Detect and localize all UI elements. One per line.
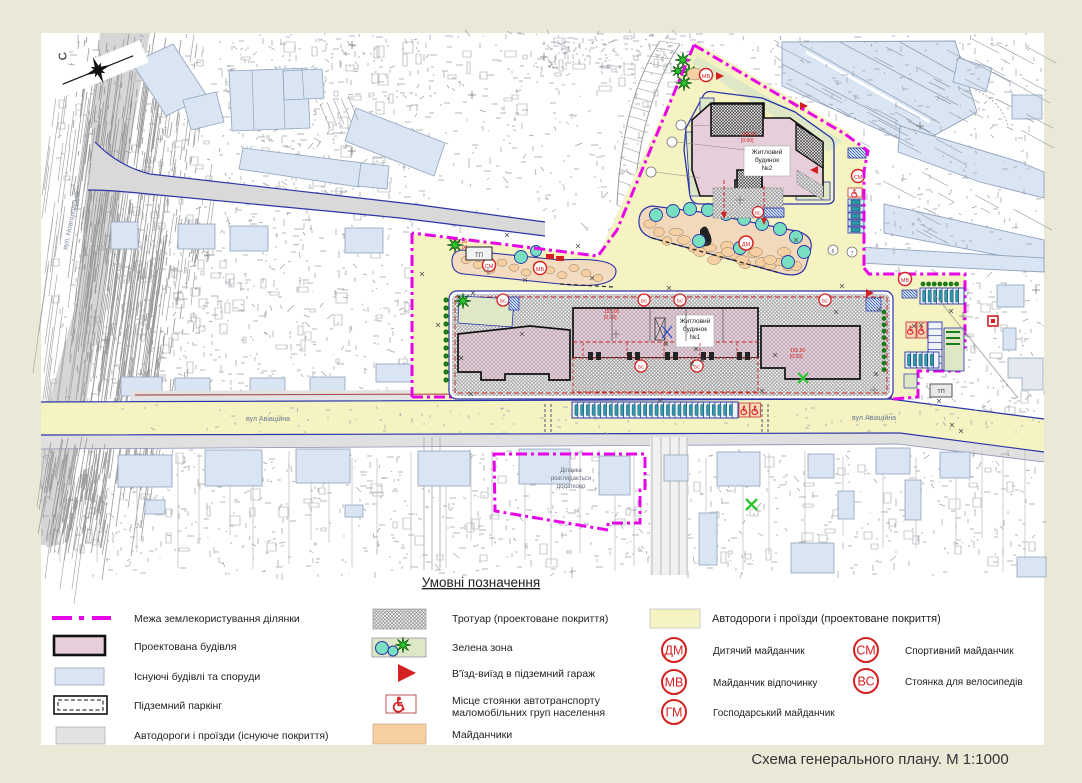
svg-text:7: 7 — [851, 251, 854, 257]
svg-text:Межа землекористування ділянки: Межа землекористування ділянки — [134, 613, 300, 625]
svg-text:№1: №1 — [690, 334, 701, 341]
svg-text:Житловий: Житловий — [680, 317, 711, 325]
svg-text:Ділянка: Ділянка — [560, 468, 582, 474]
svg-text:ВС: ВС — [677, 299, 684, 304]
svg-text:Схема генерального плану. М 1: Схема генерального плану. М 1:1000 — [751, 751, 1008, 768]
svg-text:ВС: ВС — [694, 365, 701, 370]
svg-text:МВ: МВ — [901, 278, 910, 284]
svg-text:ТП: ТП — [937, 389, 944, 395]
svg-text:Спортивний майданчик: Спортивний майданчик — [905, 646, 1014, 657]
svg-text:Майданчик відпочинку: Майданчик відпочинку — [713, 678, 817, 689]
svg-text:додатково: додатково — [557, 484, 586, 490]
svg-text:СМ: СМ — [854, 175, 863, 181]
svg-text:Господарський майданчик: Господарський майданчик — [713, 708, 835, 719]
svg-text:Тротуар (проектоване покриття): Тротуар (проектоване покриття) — [452, 613, 608, 625]
svg-text:ВС: ВС — [641, 299, 648, 304]
svg-text:розглядається: розглядається — [551, 476, 591, 482]
svg-text:ДМ: ДМ — [665, 644, 684, 658]
svg-text:Існуючі будівлі та споруди: Існуючі будівлі та споруди — [134, 671, 260, 683]
svg-text:СМ: СМ — [856, 644, 875, 658]
svg-text:Підземний паркінг: Підземний паркінг — [134, 700, 222, 712]
svg-text:ВС: ВС — [755, 211, 762, 216]
svg-text:Умовні позначення: Умовні позначення — [422, 575, 540, 590]
svg-text:Автодороги і проїзди (існуюче: Автодороги і проїзди (існуюче покриття) — [134, 730, 329, 742]
svg-text:ВС: ВС — [822, 299, 829, 304]
svg-text:ГМ: ГМ — [666, 706, 683, 720]
svg-text:[0.00]: [0.00] — [604, 315, 617, 321]
svg-text:будинок: будинок — [755, 156, 779, 164]
svg-text:МВ: МВ — [665, 676, 684, 690]
svg-text:Дитячий майданчик: Дитячий майданчик — [713, 646, 805, 657]
svg-text:вул Авіаційна: вул Авіаційна — [852, 414, 896, 422]
svg-text:ВС: ВС — [858, 675, 875, 689]
svg-text:Проектована будівля: Проектована будівля — [134, 641, 236, 653]
svg-text:Зелена зона: Зелена зона — [452, 642, 513, 654]
svg-text:МВ: МВ — [702, 74, 711, 80]
svg-text:Місце стоянки автотранспорту: Місце стоянки автотранспорту — [452, 695, 601, 707]
svg-text:Житловий: Житловий — [752, 148, 783, 156]
svg-text:Майданчики: Майданчики — [452, 729, 512, 741]
svg-text:В'їзд-виїзд в підземний гараж: В'їзд-виїзд в підземний гараж — [452, 668, 595, 680]
svg-text:ДМ: ДМ — [742, 242, 751, 248]
svg-text:[0.00]: [0.00] — [790, 354, 803, 360]
svg-text:№2: №2 — [762, 165, 773, 172]
svg-text:вул Авіаційна: вул Авіаційна — [246, 415, 290, 423]
svg-text:[0.00]: [0.00] — [741, 138, 754, 144]
svg-text:СМ: СМ — [485, 264, 494, 270]
svg-text:маломобільних груп населення: маломобільних груп населення — [452, 707, 605, 719]
svg-text:ВС: ВС — [500, 299, 507, 304]
svg-text:будинок: будинок — [683, 325, 707, 333]
svg-text:Стоянка для велосипедів: Стоянка для велосипедів — [905, 677, 1023, 688]
svg-text:ВС: ВС — [638, 365, 645, 370]
svg-text:МВ: МВ — [536, 267, 545, 273]
svg-text:6: 6 — [832, 249, 835, 255]
svg-text:Автодороги і проїзди (проектов: Автодороги і проїзди (проектоване покрит… — [712, 613, 941, 625]
svg-text:ТП: ТП — [475, 253, 483, 259]
